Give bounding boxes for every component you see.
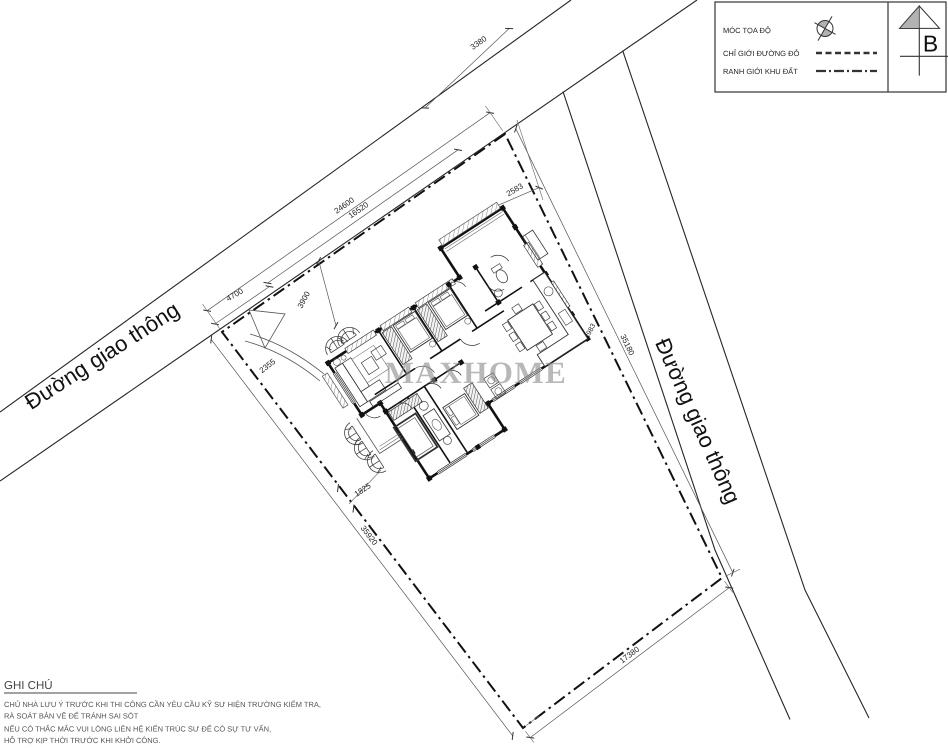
svg-text:MÓC TỌA ĐỘ: MÓC TỌA ĐỘ [723,26,771,35]
svg-text:MAXHOME: MAXHOME [385,355,568,390]
svg-text:B: B [923,31,938,57]
svg-text:CHỦ NHÀ LƯU Ý TRƯỚC KHI THI CÔ: CHỦ NHÀ LƯU Ý TRƯỚC KHI THI CÔNG CẦN YÊU… [4,700,321,709]
svg-text:GHI CHÚ: GHI CHÚ [4,679,53,692]
svg-text:RÀ SOÁT BẢN VẼ ĐỂ TRÁNH SAI SÓ: RÀ SOÁT BẢN VẼ ĐỂ TRÁNH SAI SÓT [4,712,139,721]
svg-text:CHỈ GIỚI ĐƯỜNG ĐỎ: CHỈ GIỚI ĐƯỜNG ĐỎ [723,49,800,58]
svg-text:HỖ TRỢ KỊP THỜI TRƯỚC KHI KHỞI: HỖ TRỢ KỊP THỜI TRƯỚC KHI KHỞI CÔNG. [4,736,161,745]
svg-text:NẾU CÓ THẮC MẮC VUI LÒNG LIÊN: NẾU CÓ THẮC MẮC VUI LÒNG LIÊN HỆ KIẾN TR… [4,725,271,734]
svg-text:RANH GIỚI KHU ĐẤT: RANH GIỚI KHU ĐẤT [723,67,798,76]
